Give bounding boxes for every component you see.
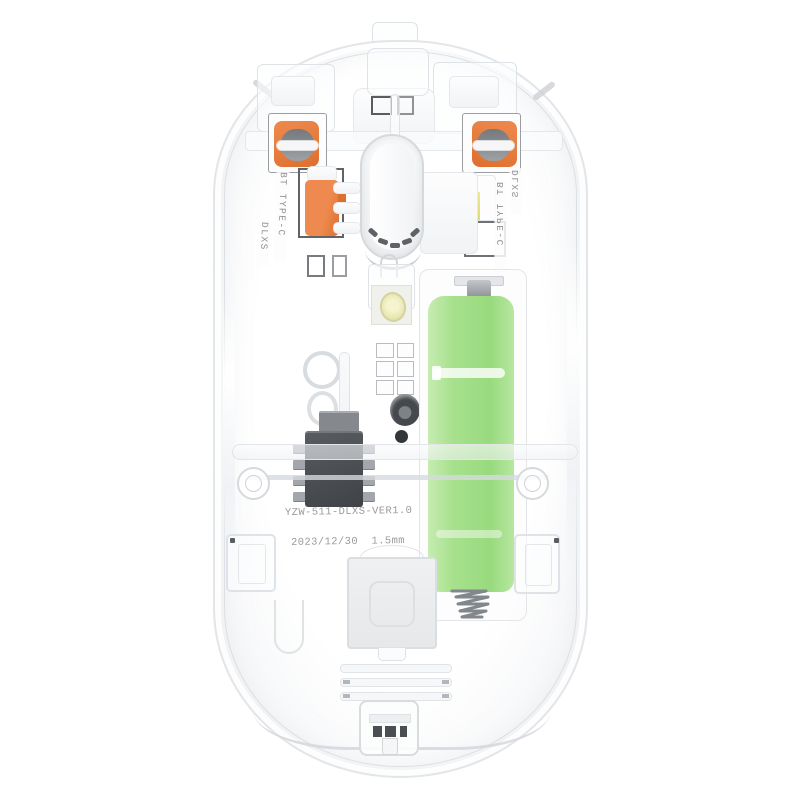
- pad-cell: [397, 361, 415, 376]
- screw-boss-right-inner: [524, 475, 541, 492]
- thin-rod: [248, 475, 548, 480]
- product-photo-transparent-mouse: BT TYPE-C DLXS DLXS BT TYPE-C: [0, 0, 800, 800]
- pcb-pad-mid-1: [307, 255, 325, 277]
- screw-boss-right: [516, 467, 549, 500]
- grip-ridge: [340, 678, 452, 687]
- wheel-arm-left-3: [333, 222, 361, 234]
- wheel-arm-left-1: [333, 182, 361, 194]
- receiver-compartment-inner: [369, 581, 415, 627]
- micro-switch-right-cap: [472, 140, 515, 151]
- top-tab: [367, 48, 429, 96]
- snap-clip-right-dot: [554, 538, 559, 543]
- wheel-arm-left-2: [333, 202, 361, 214]
- right-button-plate-insert: [449, 76, 499, 108]
- pad-cell: [376, 361, 394, 376]
- pcb-pad-top-left: [371, 96, 392, 115]
- receiver-compartment: [347, 557, 437, 649]
- pcb-date-text: 2023/12/30: [291, 536, 358, 549]
- connector-pin: [400, 726, 407, 737]
- connector-stem: [382, 738, 398, 755]
- pad-cell: [376, 343, 394, 358]
- battery-spring: [448, 588, 494, 622]
- silkscreen-right-model: DLXS: [509, 168, 522, 214]
- connector-bar: [369, 714, 411, 723]
- clear-crossbar: [232, 444, 578, 460]
- chip-pin: [361, 492, 375, 501]
- cable-hook: [274, 600, 304, 654]
- pad-cell: [397, 380, 415, 395]
- top-right-glint: [532, 81, 556, 102]
- snap-clip-left-dot: [230, 538, 235, 543]
- rubber-grommet: [390, 394, 420, 426]
- left-shell-highlight: [223, 297, 235, 567]
- micro-switch-left: [268, 113, 327, 173]
- snap-clip-left-plate: [238, 544, 266, 584]
- grip-ridge: [340, 664, 452, 673]
- mouse-shell: BT TYPE-C DLXS DLXS BT TYPE-C: [213, 40, 588, 778]
- ridge-tick: [442, 694, 449, 698]
- micro-switch-left-cap: [276, 140, 319, 151]
- wheel-mount-right: [420, 172, 478, 254]
- screw-boss-left: [237, 467, 270, 500]
- pcb-hole-dot: [395, 430, 408, 443]
- pad-cell: [397, 343, 415, 358]
- silkscreen-left-model: DLXS: [256, 220, 271, 266]
- clear-ring-top: [303, 351, 341, 389]
- micro-switch-right: [462, 113, 521, 173]
- snap-clip-left: [226, 534, 276, 592]
- battery-highlight-cap: [432, 366, 441, 380]
- pad-cell: [376, 380, 394, 395]
- indicator-pad-grid: [376, 343, 414, 395]
- ridge-tick: [343, 694, 350, 698]
- pcb-text-gap: [358, 536, 372, 548]
- pcb-pad-mid-2: [332, 255, 347, 277]
- snap-clip-right-plate: [525, 544, 552, 586]
- compartment-notch: [378, 647, 406, 661]
- battery-lower-stripe: [436, 530, 502, 538]
- scroll-wheel: [360, 134, 424, 260]
- ridge-tick: [343, 680, 350, 684]
- right-shell-highlight: [567, 242, 580, 572]
- bottom-connector: [359, 700, 419, 756]
- connector-pin: [385, 726, 396, 737]
- ridge-tick: [442, 680, 449, 684]
- connector-pin: [373, 726, 382, 737]
- ic-chip: [305, 431, 363, 507]
- silkscreen-right-port: BT TYPE-C: [494, 180, 507, 272]
- pcb-model-text: YZW-511-DLXS-VER1.0: [285, 505, 413, 519]
- snap-clip-right: [514, 534, 560, 594]
- left-button-plate-insert: [271, 76, 315, 106]
- chip-pin: [361, 460, 375, 469]
- screw-boss-left-inner: [245, 475, 262, 492]
- battery-highlight-stripe: [435, 368, 505, 378]
